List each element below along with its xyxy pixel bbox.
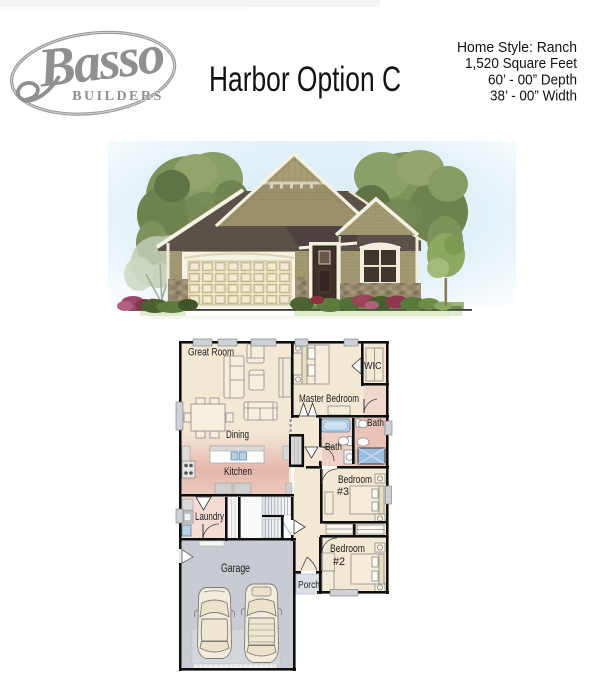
svg-text:#2: #2: [333, 556, 345, 568]
svg-text:Dining: Dining: [226, 429, 249, 441]
svg-text:WIC: WIC: [364, 360, 382, 372]
svg-text:Master Bedroom: Master Bedroom: [299, 393, 359, 405]
svg-text:Laundry: Laundry: [195, 511, 224, 523]
svg-text:Garage: Garage: [221, 563, 250, 575]
svg-text:Bath: Bath: [367, 417, 384, 429]
svg-text:BUILDERS: BUILDERS: [72, 89, 164, 104]
svg-text:Bath: Bath: [325, 441, 342, 453]
svg-text:Great Room: Great Room: [188, 347, 234, 359]
svg-text:1,520 Square Feet: 1,520 Square Feet: [465, 55, 578, 72]
svg-text:Porch: Porch: [298, 579, 320, 591]
svg-text:Home Style: Ranch: Home Style: Ranch: [457, 39, 577, 56]
svg-text:38’ - 00” Width: 38’ - 00” Width: [490, 88, 577, 105]
svg-text:60’ - 00” Depth: 60’ - 00” Depth: [488, 72, 577, 89]
svg-text:Harbor Option C: Harbor Option C: [209, 60, 401, 99]
svg-text:Kitchen: Kitchen: [224, 466, 252, 478]
svg-text:Bedroom: Bedroom: [338, 474, 372, 486]
svg-text:Bedroom: Bedroom: [330, 543, 365, 555]
svg-text:#3: #3: [337, 486, 349, 498]
